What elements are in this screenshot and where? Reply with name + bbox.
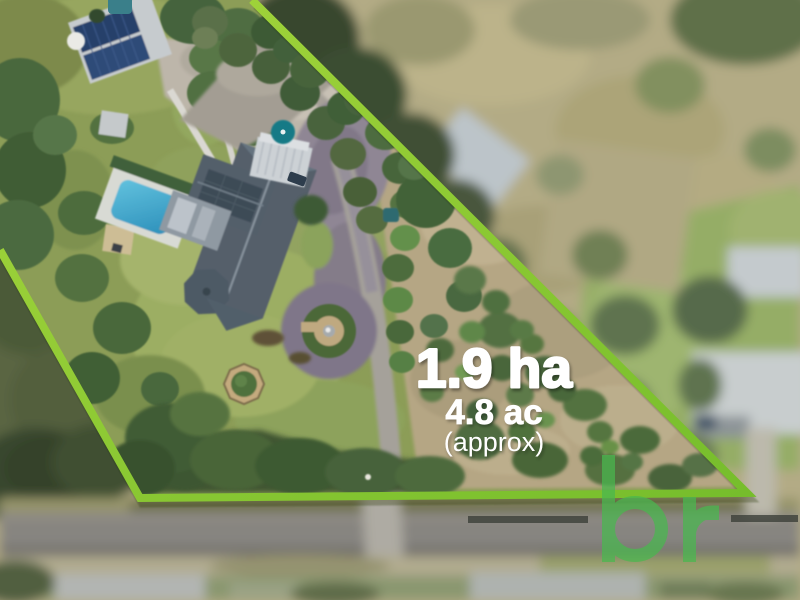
svg-text:(approx): (approx) xyxy=(444,427,545,457)
svg-text:1.9 ha: 1.9 ha xyxy=(416,337,572,399)
